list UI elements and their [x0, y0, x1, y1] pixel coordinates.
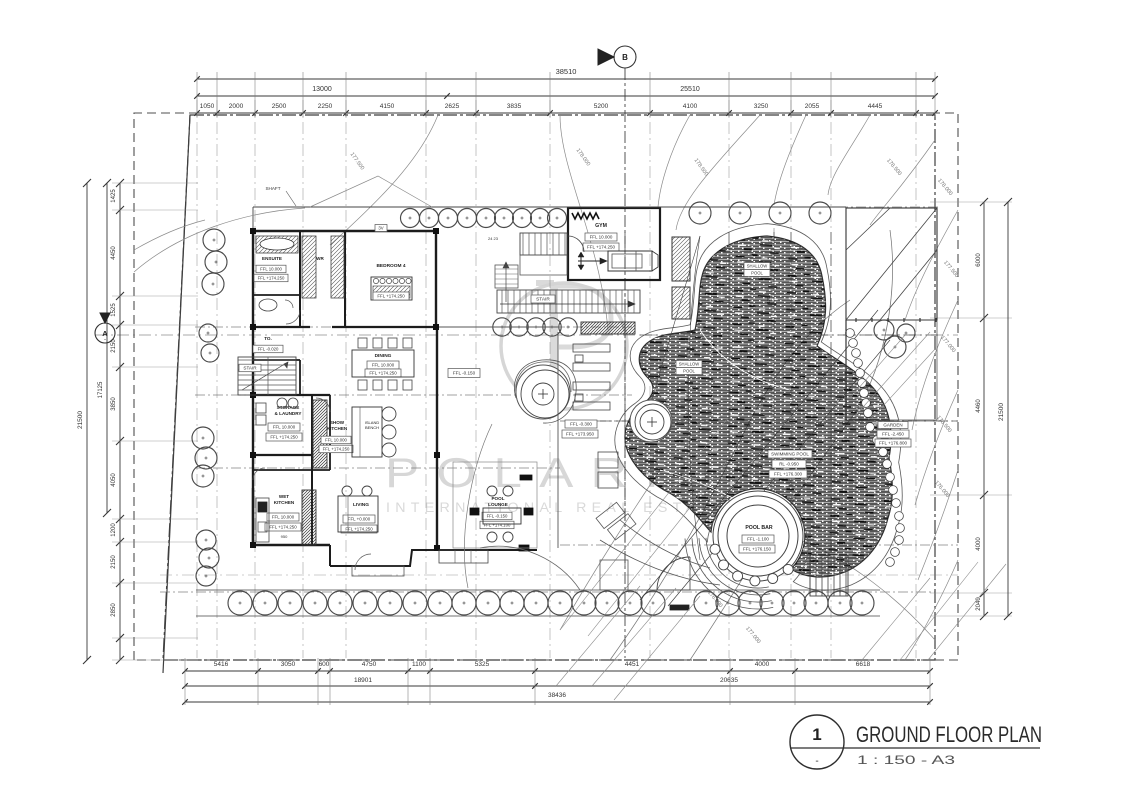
svg-text:WR: WR — [316, 256, 324, 261]
svg-text:2250: 2250 — [318, 103, 333, 110]
svg-text:FFL +174.250: FFL +174.250 — [323, 447, 350, 452]
svg-text:B: B — [622, 53, 628, 62]
svg-text:FFL 10.000: FFL 10.000 — [372, 363, 395, 368]
svg-text:WET: WET — [279, 494, 289, 499]
svg-text:4050: 4050 — [111, 473, 117, 487]
svg-text:DINING: DINING — [375, 353, 392, 359]
svg-text:4150: 4150 — [380, 103, 395, 110]
svg-text:2625: 2625 — [445, 103, 460, 110]
svg-text:-: - — [815, 756, 818, 767]
svg-text:LIVING: LIVING — [353, 502, 369, 508]
svg-text:2500: 2500 — [272, 103, 287, 110]
svg-text:FFL -0.300: FFL -0.300 — [570, 422, 592, 427]
svg-text:FFL +174.250: FFL +174.250 — [369, 371, 397, 376]
svg-text:3050: 3050 — [281, 661, 296, 668]
svg-text:FFL +174.250: FFL +174.250 — [270, 435, 298, 440]
svg-text:STAIR: STAIR — [536, 297, 550, 303]
svg-text:GROUND FLOOR PLAN: GROUND FLOOR PLAN — [856, 722, 1042, 747]
svg-text:3V: 3V — [378, 226, 383, 231]
svg-text:FFL +176.800: FFL +176.800 — [879, 441, 907, 446]
svg-text:TO.: TO. — [264, 336, 272, 341]
svg-text:FFL 10.000: FFL 10.000 — [273, 425, 296, 430]
svg-text:SHAFT: SHAFT — [265, 186, 280, 191]
svg-text:LOUNGE: LOUNGE — [488, 502, 508, 507]
svg-text:FFL 10.000: FFL 10.000 — [260, 267, 282, 272]
svg-text:FFL -1.100: FFL -1.100 — [747, 537, 769, 542]
svg-text:24 23: 24 23 — [488, 236, 499, 241]
svg-text:4000: 4000 — [755, 661, 770, 668]
svg-text:FFL -0.020: FFL -0.020 — [258, 347, 279, 352]
svg-text:FFL +174.250: FFL +174.250 — [587, 245, 615, 250]
svg-text:1050: 1050 — [200, 103, 215, 110]
svg-text:SWIMMING POOL: SWIMMING POOL — [771, 452, 809, 457]
svg-text:SHALLOW: SHALLOW — [747, 264, 768, 269]
svg-text:FFL 10.000: FFL 10.000 — [272, 515, 295, 520]
svg-text:FFL -2.450: FFL -2.450 — [882, 432, 904, 437]
svg-text:POOL BAR: POOL BAR — [745, 525, 773, 531]
svg-text:17125: 17125 — [98, 381, 104, 398]
svg-text:38510: 38510 — [556, 67, 577, 76]
svg-text:FFL +174.250: FFL +174.250 — [269, 525, 297, 530]
svg-text:1200: 1200 — [111, 523, 117, 537]
svg-text:SHALLOW: SHALLOW — [679, 362, 700, 367]
svg-text:1: 1 — [812, 725, 821, 744]
svg-text:ENSUITE: ENSUITE — [262, 256, 282, 261]
svg-text:4750: 4750 — [362, 661, 377, 668]
svg-text:FFL +173.950: FFL +173.950 — [566, 432, 594, 437]
svg-text:1 : 150 - A3: 1 : 150 - A3 — [857, 753, 955, 767]
svg-text:4445: 4445 — [868, 103, 883, 110]
svg-text:21500: 21500 — [77, 411, 84, 429]
svg-text:FFL +174.250: FFL +174.250 — [377, 294, 405, 299]
svg-text:6618: 6618 — [856, 661, 871, 668]
svg-text:1525: 1525 — [111, 303, 117, 317]
svg-text:FFL -0.150: FFL -0.150 — [453, 371, 476, 376]
svg-text:18901: 18901 — [354, 677, 372, 684]
svg-text:FFL +174.250: FFL +174.250 — [258, 276, 285, 281]
svg-text:4.30: 4.30 — [766, 295, 771, 304]
svg-text:4450: 4450 — [111, 246, 117, 260]
svg-text:GARDEN: GARDEN — [883, 423, 902, 428]
svg-text:5325: 5325 — [475, 661, 490, 668]
svg-text:FFL +174.100: FFL +174.100 — [484, 523, 511, 528]
svg-text:2055: 2055 — [805, 103, 820, 110]
svg-text:6000: 6000 — [976, 253, 982, 267]
svg-text:1100: 1100 — [412, 661, 426, 668]
svg-text:GYM: GYM — [595, 223, 607, 229]
svg-text:BEDROOM 4: BEDROOM 4 — [376, 263, 405, 269]
svg-text:4000: 4000 — [976, 537, 982, 551]
svg-text:3835: 3835 — [507, 103, 522, 110]
svg-text:FFL 10.000: FFL 10.000 — [590, 235, 613, 240]
svg-text:38436: 38436 — [548, 692, 566, 699]
svg-text:600: 600 — [319, 661, 330, 668]
svg-text:5416: 5416 — [214, 661, 229, 668]
svg-text:21500: 21500 — [998, 403, 1005, 421]
svg-text:2000: 2000 — [229, 103, 244, 110]
svg-text:FFL -0.150: FFL -0.150 — [487, 514, 508, 519]
svg-text:FFL +176.300: FFL +176.300 — [774, 472, 802, 477]
svg-text:3250: 3250 — [754, 103, 769, 110]
svg-text:4451: 4451 — [625, 661, 640, 668]
svg-text:POOL: POOL — [751, 271, 763, 276]
svg-text:KITCHEN: KITCHEN — [274, 500, 295, 505]
svg-text:FFL 10.000: FFL 10.000 — [325, 438, 347, 443]
svg-text:POOL: POOL — [683, 369, 695, 374]
svg-text:BENCH: BENCH — [365, 425, 379, 430]
svg-text:950: 950 — [281, 534, 288, 539]
svg-text:1425: 1425 — [111, 189, 117, 203]
svg-text:20635: 20635 — [720, 677, 738, 684]
svg-text:FFL +0.000: FFL +0.000 — [348, 517, 371, 522]
svg-text:2150: 2150 — [111, 555, 117, 569]
svg-text:POOL: POOL — [491, 496, 504, 501]
svg-text:FFL +176.150: FFL +176.150 — [743, 547, 771, 552]
svg-text:-: - — [104, 337, 106, 343]
svg-text:4100: 4100 — [683, 103, 698, 110]
svg-text:2850: 2850 — [111, 603, 117, 617]
svg-text:13000: 13000 — [312, 86, 332, 93]
svg-text:RL -0.950: RL -0.950 — [779, 462, 799, 467]
svg-text:FFL +174.250: FFL +174.250 — [345, 527, 373, 532]
svg-text:4460: 4460 — [976, 399, 982, 413]
svg-text:KITCHEN: KITCHEN — [327, 426, 348, 431]
svg-text:& LAUNDRY: & LAUNDRY — [275, 411, 302, 416]
svg-text:5200: 5200 — [594, 103, 609, 110]
svg-text:25510: 25510 — [680, 86, 700, 93]
svg-text:3850: 3850 — [111, 397, 117, 411]
svg-text:STAIR: STAIR — [243, 366, 257, 371]
svg-text:2040: 2040 — [976, 597, 982, 611]
svg-text:SHOW: SHOW — [330, 420, 345, 425]
